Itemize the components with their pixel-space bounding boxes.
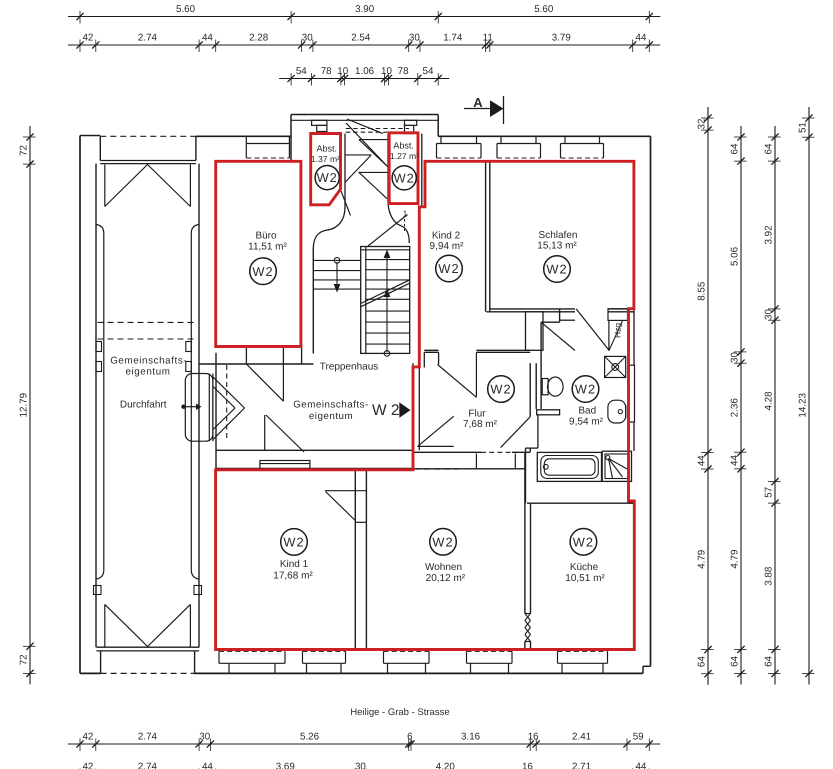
svg-text:9,54 m²: 9,54 m² bbox=[569, 417, 604, 428]
svg-text:1.74: 1.74 bbox=[443, 33, 463, 44]
svg-text:6: 6 bbox=[407, 732, 413, 743]
svg-text:A: A bbox=[473, 95, 483, 110]
svg-text:2.74: 2.74 bbox=[138, 762, 158, 769]
svg-text:Treppenhaus: Treppenhaus bbox=[320, 362, 379, 373]
svg-text:64: 64 bbox=[764, 655, 775, 666]
svg-text:3.88: 3.88 bbox=[764, 566, 775, 586]
svg-text:44: 44 bbox=[635, 762, 646, 769]
svg-text:64: 64 bbox=[764, 143, 775, 154]
svg-text:2.74: 2.74 bbox=[138, 33, 158, 44]
svg-text:4.79: 4.79 bbox=[730, 550, 741, 569]
svg-text:4.28: 4.28 bbox=[764, 391, 775, 411]
svg-text:51: 51 bbox=[798, 122, 809, 133]
svg-text:Kind 1: Kind 1 bbox=[280, 559, 309, 570]
svg-text:W2: W2 bbox=[394, 170, 415, 185]
svg-text:2.71: 2.71 bbox=[572, 762, 591, 769]
svg-text:Gemeinschafts-: Gemeinschafts- bbox=[110, 356, 187, 367]
svg-text:32: 32 bbox=[697, 119, 708, 130]
svg-text:9,94 m²: 9,94 m² bbox=[430, 241, 465, 252]
svg-text:Flur: Flur bbox=[468, 409, 486, 420]
svg-text:7,68 m²: 7,68 m² bbox=[463, 419, 498, 430]
svg-text:W2: W2 bbox=[283, 535, 304, 550]
svg-text:17,68 m²: 17,68 m² bbox=[273, 571, 313, 582]
svg-text:W2: W2 bbox=[546, 262, 567, 277]
svg-text:1.37 m²: 1.37 m² bbox=[311, 154, 340, 164]
svg-text:8.55: 8.55 bbox=[697, 281, 708, 301]
svg-text:44: 44 bbox=[636, 33, 647, 44]
svg-text:1.27 m²: 1.27 m² bbox=[390, 151, 419, 161]
svg-text:W 2: W 2 bbox=[372, 402, 400, 419]
svg-text:W2: W2 bbox=[252, 264, 273, 279]
svg-text:Abst.: Abst. bbox=[393, 141, 414, 151]
svg-text:4.79: 4.79 bbox=[697, 550, 708, 569]
svg-text:30: 30 bbox=[409, 33, 420, 44]
svg-text:3.69: 3.69 bbox=[276, 762, 295, 769]
svg-text:15,13 m²: 15,13 m² bbox=[537, 241, 577, 252]
svg-text:12.79: 12.79 bbox=[19, 393, 30, 418]
svg-text:Wohnen: Wohnen bbox=[425, 562, 462, 573]
svg-text:5.26: 5.26 bbox=[300, 732, 320, 743]
svg-text:30: 30 bbox=[355, 762, 366, 769]
svg-text:44: 44 bbox=[697, 455, 708, 466]
svg-text:3.16: 3.16 bbox=[461, 732, 481, 743]
svg-text:11: 11 bbox=[483, 33, 493, 44]
svg-text:eigentum: eigentum bbox=[309, 411, 353, 422]
svg-text:72: 72 bbox=[19, 654, 30, 665]
svg-text:11,51 m²: 11,51 m² bbox=[248, 242, 287, 253]
svg-text:Büro: Büro bbox=[255, 231, 277, 242]
svg-text:10: 10 bbox=[337, 66, 348, 77]
svg-text:64: 64 bbox=[697, 656, 708, 667]
svg-text:W2: W2 bbox=[490, 382, 511, 397]
svg-text:30: 30 bbox=[302, 33, 313, 44]
svg-text:16: 16 bbox=[528, 732, 539, 743]
svg-text:W2: W2 bbox=[432, 534, 453, 549]
svg-text:Schlafen: Schlafen bbox=[539, 230, 578, 241]
svg-text:20,12 m²: 20,12 m² bbox=[426, 573, 466, 584]
svg-text:Heilige - Grab - Strasse: Heilige - Grab - Strasse bbox=[350, 707, 449, 718]
svg-text:54: 54 bbox=[296, 66, 307, 77]
svg-text:30: 30 bbox=[199, 732, 210, 743]
svg-text:W2: W2 bbox=[575, 382, 596, 397]
svg-text:4.20: 4.20 bbox=[436, 762, 456, 769]
svg-text:44: 44 bbox=[730, 455, 741, 466]
svg-text:Küche: Küche bbox=[570, 562, 599, 573]
svg-text:2.36: 2.36 bbox=[730, 398, 741, 418]
svg-text:Bad: Bad bbox=[578, 406, 596, 417]
svg-text:1.06: 1.06 bbox=[355, 66, 375, 77]
svg-text:10: 10 bbox=[381, 66, 392, 77]
svg-text:Kind 2: Kind 2 bbox=[432, 231, 461, 242]
svg-text:72: 72 bbox=[19, 145, 30, 156]
svg-text:64: 64 bbox=[730, 655, 741, 666]
svg-text:5.60: 5.60 bbox=[534, 4, 554, 15]
svg-text:78: 78 bbox=[398, 66, 409, 77]
svg-text:5.06: 5.06 bbox=[730, 246, 741, 266]
svg-text:2.74: 2.74 bbox=[138, 732, 158, 743]
svg-text:W2: W2 bbox=[317, 170, 338, 185]
svg-text:W2: W2 bbox=[573, 534, 594, 549]
svg-text:64: 64 bbox=[730, 143, 741, 154]
svg-text:44: 44 bbox=[202, 33, 213, 44]
svg-text:Abst.: Abst. bbox=[317, 144, 338, 154]
svg-text:2.28: 2.28 bbox=[249, 33, 269, 44]
svg-text:44: 44 bbox=[202, 762, 213, 769]
svg-text:Gemeinschafts-: Gemeinschafts- bbox=[293, 400, 369, 411]
svg-text:2.41: 2.41 bbox=[572, 732, 591, 743]
svg-text:3.90: 3.90 bbox=[355, 4, 375, 15]
svg-text:Hzg: Hzg bbox=[613, 323, 623, 338]
svg-text:3.79: 3.79 bbox=[552, 33, 571, 44]
svg-text:3.92: 3.92 bbox=[764, 225, 775, 244]
svg-text:54: 54 bbox=[423, 66, 434, 77]
svg-text:59: 59 bbox=[633, 732, 644, 743]
svg-text:W2: W2 bbox=[438, 261, 459, 276]
svg-text:42: 42 bbox=[82, 33, 93, 44]
svg-text:Durchfahrt: Durchfahrt bbox=[120, 400, 167, 411]
svg-text:16: 16 bbox=[522, 762, 533, 769]
svg-text:2.54: 2.54 bbox=[351, 33, 371, 44]
svg-text:30: 30 bbox=[764, 309, 775, 320]
svg-text:eigentum: eigentum bbox=[125, 367, 170, 378]
svg-text:57: 57 bbox=[764, 487, 775, 498]
svg-text:42: 42 bbox=[82, 732, 93, 743]
svg-text:1: 1 bbox=[403, 209, 408, 219]
svg-text:30: 30 bbox=[730, 352, 741, 363]
svg-text:78: 78 bbox=[321, 66, 332, 77]
svg-text:5.60: 5.60 bbox=[176, 4, 196, 15]
svg-text:42: 42 bbox=[82, 762, 93, 769]
svg-text:14.23: 14.23 bbox=[798, 393, 809, 418]
svg-text:10,51 m²: 10,51 m² bbox=[565, 573, 605, 584]
